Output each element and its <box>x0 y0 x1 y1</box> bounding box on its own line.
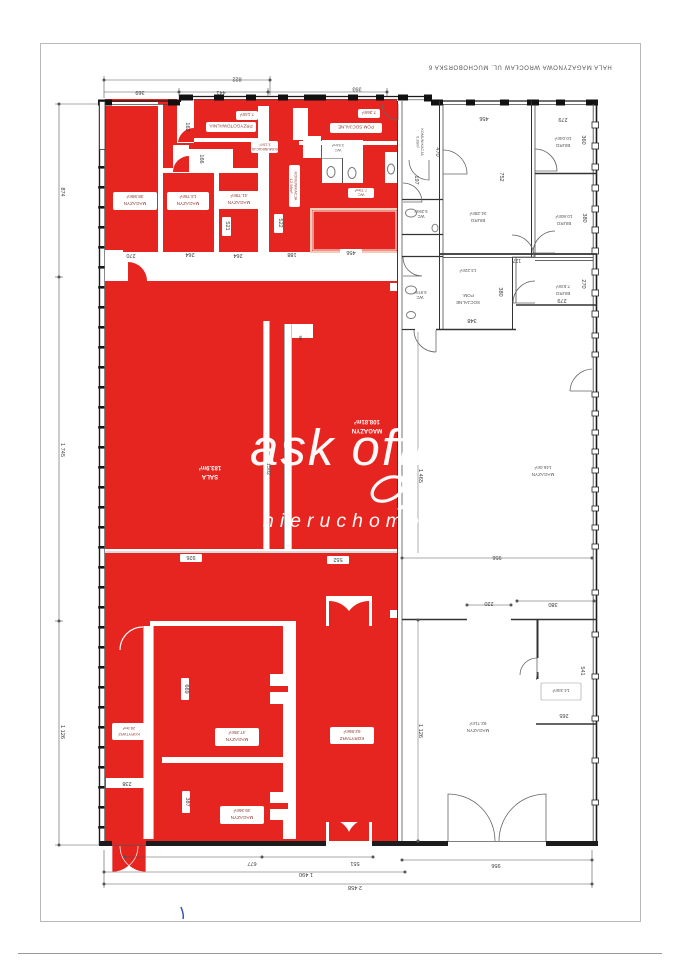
svg-text:62.86m²: 62.86m² <box>343 729 360 734</box>
svg-text:13.22m²: 13.22m² <box>459 268 476 273</box>
svg-text:BIURO: BIURO <box>556 221 571 226</box>
svg-text:38.98m²: 38.98m² <box>126 194 143 199</box>
svg-text:956: 956 <box>492 554 501 560</box>
svg-text:387: 387 <box>184 797 190 806</box>
svg-text:238: 238 <box>122 780 131 786</box>
svg-text:264: 264 <box>233 252 242 258</box>
svg-text:541: 541 <box>579 666 585 675</box>
svg-text:380: 380 <box>581 213 587 222</box>
svg-text:369: 369 <box>135 89 144 95</box>
svg-text:1 745: 1 745 <box>59 443 65 457</box>
svg-text:521: 521 <box>224 221 230 230</box>
svg-text:14.34m²: 14.34m² <box>552 688 569 693</box>
svg-text:669: 669 <box>183 684 189 693</box>
svg-text:KORYTARZ: KORYTARZ <box>340 736 365 741</box>
svg-text:BIURO: BIURO <box>555 291 570 296</box>
svg-text:441: 441 <box>216 89 225 95</box>
svg-text:264: 264 <box>185 251 194 257</box>
svg-text:13.75m²: 13.75m² <box>179 194 196 199</box>
svg-text:ask office: ask office <box>250 419 485 476</box>
svg-text:POM.: POM. <box>462 293 474 298</box>
svg-text:270: 270 <box>126 252 135 258</box>
svg-text:551: 551 <box>350 860 359 866</box>
svg-text:162: 162 <box>184 122 190 131</box>
svg-text:874: 874 <box>59 187 65 196</box>
svg-text:2 458: 2 458 <box>348 884 362 890</box>
svg-text:188: 188 <box>287 251 296 257</box>
svg-text:456: 456 <box>346 249 355 255</box>
svg-text:7.14m²: 7.14m² <box>239 112 254 117</box>
svg-text:348: 348 <box>467 317 476 323</box>
svg-text:360: 360 <box>580 135 586 144</box>
svg-text:HALA MAGAZYNOWA WROCŁAW UL. MU: HALA MAGAZYNOWA WROCŁAW UL. MUCHOBORSKA … <box>428 64 612 70</box>
svg-text:220: 220 <box>484 600 493 606</box>
svg-text:10.60m²: 10.60m² <box>555 214 572 219</box>
svg-text:7.36m²: 7.36m² <box>361 110 376 115</box>
svg-text:380: 380 <box>548 601 557 607</box>
svg-text:380: 380 <box>497 287 503 296</box>
svg-text:279: 279 <box>558 116 567 122</box>
svg-text:KOMUNIKACJA: KOMUNIKACJA <box>251 147 278 151</box>
svg-text:MAGAZYN: MAGAZYN <box>226 737 249 742</box>
svg-text:MAGAZYN: MAGAZYN <box>467 728 490 733</box>
svg-text:SALA: SALA <box>201 473 218 479</box>
svg-text:MAGAZYN: MAGAZYN <box>228 200 251 205</box>
svg-text:470: 470 <box>434 147 440 156</box>
svg-text:96: 96 <box>298 335 303 341</box>
svg-text:47.35m²: 47.35m² <box>228 730 245 735</box>
svg-text:KOMUNIKACJA: KOMUNIKACJA <box>420 128 424 156</box>
svg-text:12.98m²: 12.98m² <box>289 179 294 194</box>
svg-text:522: 522 <box>277 218 283 227</box>
svg-text:822: 822 <box>232 76 241 82</box>
svg-text:127: 127 <box>513 257 522 263</box>
svg-text:28.9m²: 28.9m² <box>122 726 135 731</box>
svg-text:1 126: 1 126 <box>417 724 423 738</box>
svg-text:956: 956 <box>491 862 500 868</box>
svg-text:197: 197 <box>413 175 419 184</box>
svg-text:34.28m²: 34.28m² <box>469 211 486 216</box>
svg-text:SOCJALNE: SOCJALNE <box>456 300 480 305</box>
svg-text:MAGAZYN: MAGAZYN <box>231 815 254 820</box>
svg-text:nieruchomości: nieruchomości <box>263 510 467 532</box>
svg-text:9.28m²: 9.28m² <box>416 136 420 149</box>
svg-text:7.79m²: 7.79m² <box>354 188 367 193</box>
svg-text:752: 752 <box>498 172 504 181</box>
svg-text:926: 926 <box>186 554 195 560</box>
svg-text:MAGAZYN: MAGAZYN <box>532 472 555 477</box>
svg-text:183.9m²: 183.9m² <box>199 464 221 471</box>
svg-text:270: 270 <box>580 279 586 288</box>
svg-text:552: 552 <box>333 556 342 562</box>
svg-text:456: 456 <box>479 115 488 121</box>
svg-text:1 126: 1 126 <box>59 725 65 739</box>
svg-text:393: 393 <box>352 86 361 92</box>
svg-text:MAGAZYN: MAGAZYN <box>124 201 147 206</box>
svg-text:92.71m²: 92.71m² <box>469 721 486 726</box>
svg-text:3.12m²: 3.12m² <box>259 143 271 147</box>
svg-text:BIURO: BIURO <box>470 218 485 223</box>
svg-text:1 490: 1 490 <box>299 871 313 877</box>
svg-text:MAGAZYN: MAGAZYN <box>177 201 200 206</box>
svg-text:41.78m²: 41.78m² <box>230 193 247 198</box>
svg-text:10.04m²: 10.04m² <box>554 136 571 141</box>
svg-text:PRZYGOTOWALNIA: PRZYGOTOWALNIA <box>208 124 252 129</box>
svg-text:7.53m²: 7.53m² <box>555 284 570 289</box>
svg-text:BIURO: BIURO <box>555 143 570 148</box>
svg-text:279: 279 <box>557 297 566 303</box>
svg-text:49.36m²: 49.36m² <box>233 808 250 813</box>
svg-text:POM.SOCJALNE: POM.SOCJALNE <box>338 125 374 130</box>
svg-text:166: 166 <box>198 154 204 163</box>
svg-text:146.0m²: 146.0m² <box>534 465 551 470</box>
svg-text:KORYTARZ: KORYTARZ <box>118 732 140 737</box>
svg-text:3.54m²: 3.54m² <box>331 143 344 148</box>
svg-text:677: 677 <box>247 860 256 866</box>
svg-text:265: 265 <box>559 712 568 718</box>
